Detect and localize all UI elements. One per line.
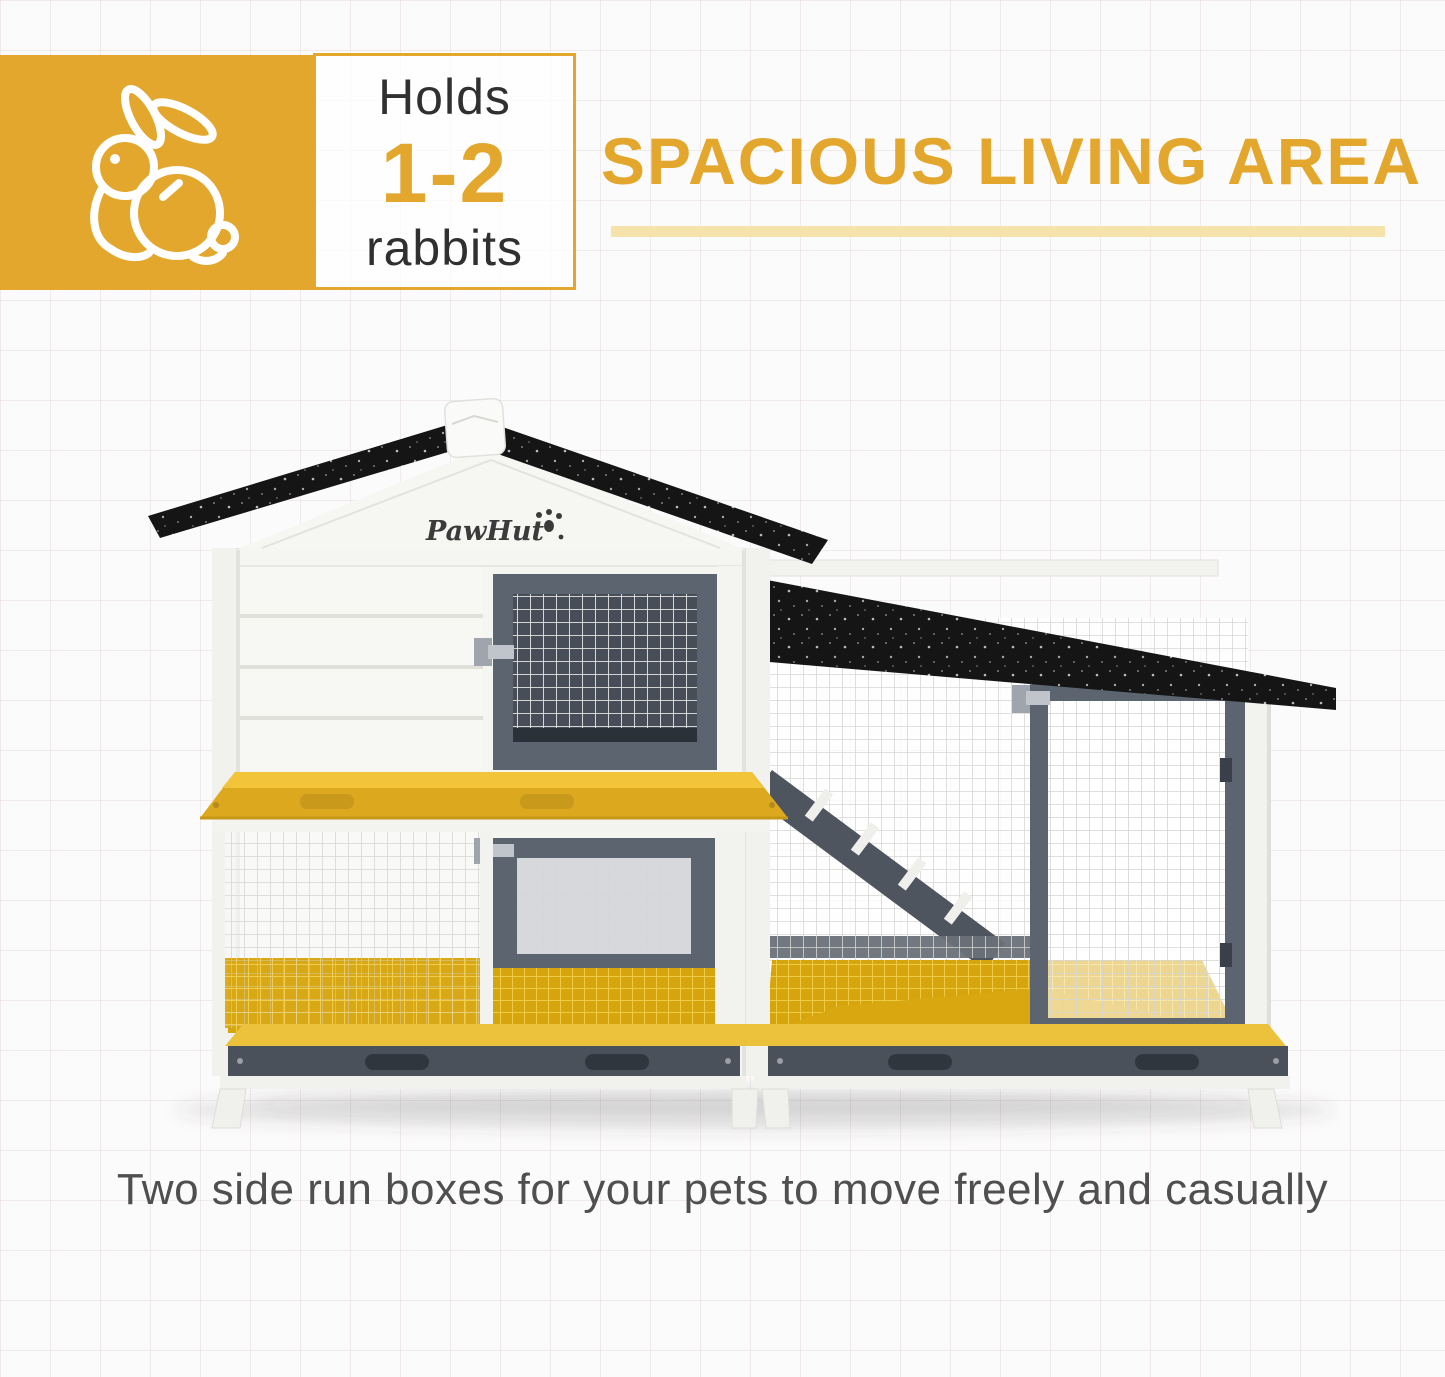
lower-level	[212, 818, 770, 1033]
upper-door	[474, 566, 742, 770]
rabbit-icon	[51, 73, 263, 273]
run-door	[1012, 683, 1245, 1036]
lower-door-stile-right	[715, 832, 745, 1028]
title-underline	[611, 226, 1385, 237]
lower-left-mesh	[225, 832, 485, 958]
section-heading: SPACIOUS LIVING AREA	[601, 128, 1411, 237]
tray	[200, 772, 788, 818]
roof-finial	[444, 398, 506, 458]
run-corner-post-edge	[1267, 683, 1271, 1048]
rabbit-badge	[0, 55, 313, 290]
front-floor-band	[225, 1024, 1286, 1046]
capacity-label-top: Holds	[378, 72, 511, 122]
base-board-left	[228, 1046, 740, 1076]
upper-door-stile	[717, 566, 742, 770]
run-door-hinge-top	[1220, 758, 1232, 782]
lower-door	[474, 838, 715, 968]
capacity-number: 1-2	[381, 131, 508, 215]
bottom-rail-left	[220, 1076, 746, 1089]
brand-logo-text: PawHut	[425, 516, 544, 547]
tray-handle-right	[520, 794, 574, 809]
capacity-box: Holds 1-2 rabbits	[313, 53, 576, 290]
run-fascia	[753, 560, 1218, 576]
caption-text: Two side run boxes for your pets to move…	[0, 1165, 1445, 1215]
lower-top-rail	[212, 818, 770, 832]
house-section: PawHut	[148, 398, 828, 1076]
capacity-label-bottom: rabbits	[366, 223, 523, 273]
run-door-hinge-bottom	[1220, 943, 1232, 967]
hutch-svg: PawHut	[140, 388, 1340, 1148]
lower-door-stile-left	[480, 832, 493, 1028]
run-section	[746, 560, 1336, 1048]
tray-handle-left	[300, 794, 354, 809]
base-board-right	[768, 1046, 1288, 1076]
bottom-rail-right	[754, 1076, 1290, 1089]
hutch-illustration: PawHut	[140, 388, 1340, 1148]
lower-left-floor-mesh	[225, 958, 485, 1028]
page-title: SPACIOUS LIVING AREA	[601, 128, 1411, 194]
run-bottom-rail-mesh	[770, 936, 1032, 958]
